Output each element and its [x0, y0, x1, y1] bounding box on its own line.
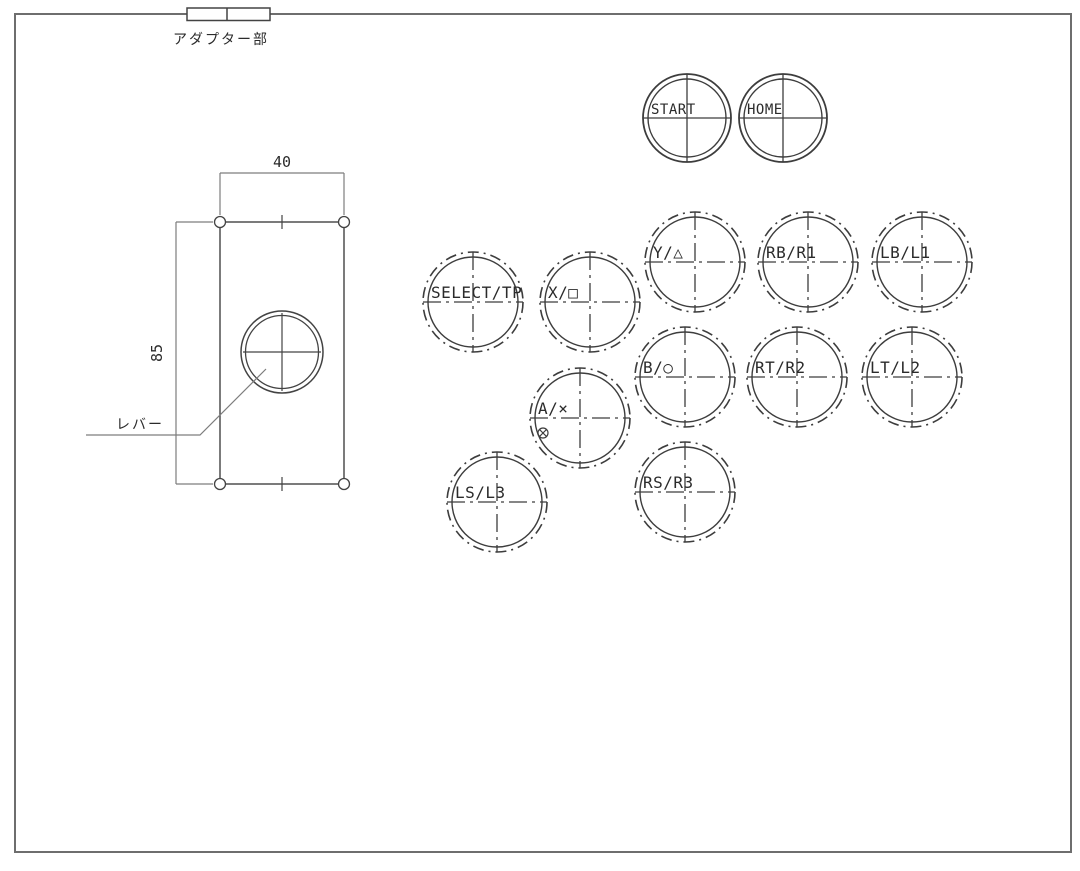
button-lt-l2: LT/L2 — [862, 327, 962, 427]
button-inner-circle — [545, 257, 635, 347]
button-label-b-circle: B/○ — [643, 358, 673, 377]
button-label-y-triangle: Y/△ — [653, 243, 683, 262]
button-label-lb-l1: LB/L1 — [880, 243, 931, 262]
button-ls-l3: LS/L3 — [447, 452, 547, 552]
button-inner-circle — [640, 447, 730, 537]
mounting-hole — [215, 479, 226, 490]
button-rb-r1: RB/R1 — [758, 212, 858, 312]
button-label-home: HOME — [747, 102, 783, 118]
button-inner-circle — [428, 257, 518, 347]
button-inner-circle — [452, 457, 542, 547]
circle-cross-symbol — [538, 428, 548, 438]
mounting-hole — [215, 217, 226, 228]
button-a-cross: A/× — [530, 368, 630, 468]
mounting-hole — [339, 479, 350, 490]
button-label-x-square: X/□ — [548, 283, 578, 302]
adapter-label: アダプター部 — [173, 32, 269, 48]
mounting-hole — [339, 217, 350, 228]
button-select-tp: SELECT/TP — [423, 252, 523, 352]
button-inner-circle — [867, 332, 957, 422]
button-start: START — [643, 74, 731, 162]
adapter-section: アダプター部 — [173, 8, 270, 48]
button-label-select-tp: SELECT/TP — [431, 283, 522, 302]
height-dimension: 85 — [148, 222, 213, 484]
button-label-lt-l2: LT/L2 — [870, 358, 921, 377]
drawing-page: アダプター部4085レバーSTARTHOMEY/△RB/R1LB/L1SELEC… — [0, 0, 1080, 871]
button-label-rs-r3: RS/R3 — [643, 473, 694, 492]
button-label-ls-l3: LS/L3 — [455, 483, 506, 502]
button-home: HOME — [739, 74, 827, 162]
button-label-rb-r1: RB/R1 — [766, 243, 817, 262]
button-lb-l1: LB/L1 — [872, 212, 972, 312]
button-inner-circle — [640, 332, 730, 422]
width-dim-text: 40 — [273, 153, 291, 171]
button-x-square: X/□ — [540, 252, 640, 352]
button-label-start: START — [651, 102, 696, 118]
width-dimension: 40 — [220, 153, 344, 215]
lever-label: レバー — [116, 417, 164, 433]
button-inner-circle — [650, 217, 740, 307]
button-inner-circle — [763, 217, 853, 307]
button-inner-circle — [877, 217, 967, 307]
button-label-a-cross: A/× — [538, 399, 568, 418]
height-dim-text: 85 — [148, 344, 166, 362]
button-b-circle: B/○ — [635, 327, 735, 427]
lever-hole — [241, 311, 323, 393]
button-rt-r2: RT/R2 — [747, 327, 847, 427]
button-label-rt-r2: RT/R2 — [755, 358, 806, 377]
button-inner-circle — [535, 373, 625, 463]
adapter-connector-shape — [187, 8, 270, 21]
button-rs-r3: RS/R3 — [635, 442, 735, 542]
button-y-triangle: Y/△ — [645, 212, 745, 312]
button-inner-circle — [752, 332, 842, 422]
panel-drawing-canvas: アダプター部4085レバーSTARTHOMEY/△RB/R1LB/L1SELEC… — [0, 0, 1080, 871]
